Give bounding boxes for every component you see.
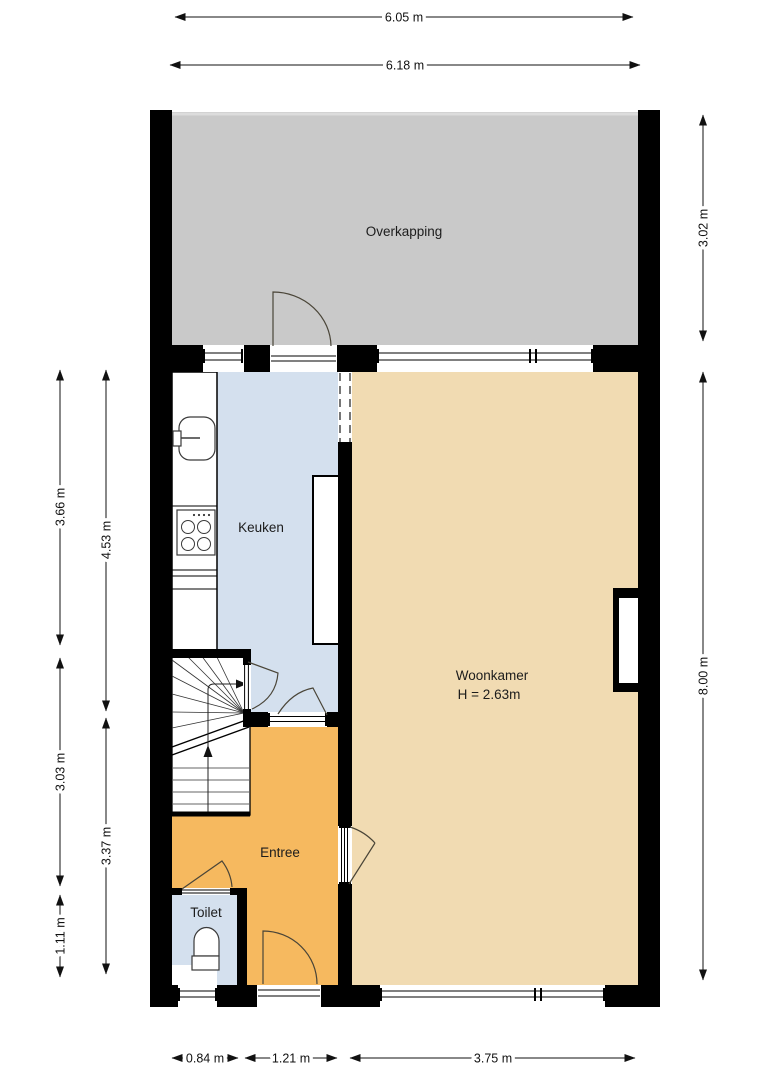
svg-text:0.84 m: 0.84 m <box>186 1052 224 1066</box>
window-toilet <box>178 985 217 1007</box>
door-opening-keuken-entree <box>268 712 327 727</box>
window-keuken <box>203 345 244 372</box>
door-opening-stairs-keuken <box>243 663 251 711</box>
svg-text:3.75 m: 3.75 m <box>474 1052 512 1066</box>
svg-text:6.18 m: 6.18 m <box>386 59 424 73</box>
door-opening-entree-woonkamer <box>338 826 352 884</box>
floor-plan-svg: Overkapping Keuken Woonkamer H = 2.63m E… <box>0 0 763 1080</box>
svg-text:4.53 m: 4.53 m <box>100 521 114 559</box>
wall-stair-top <box>172 649 251 658</box>
door-opening-overkapping <box>270 345 337 372</box>
label-woonkamer-height: H = 2.63m <box>458 687 521 702</box>
svg-text:3.37 m: 3.37 m <box>100 827 114 865</box>
floor-plan-page: Overkapping Keuken Woonkamer H = 2.63m E… <box>0 0 763 1080</box>
toilet-fixture-icon <box>192 928 219 971</box>
label-keuken: Keuken <box>238 520 284 535</box>
label-woonkamer: Woonkamer <box>456 668 529 683</box>
window-woonkamer-top <box>377 345 593 372</box>
staircase <box>172 650 250 815</box>
label-overkapping: Overkapping <box>366 224 443 239</box>
tall-cabinet <box>313 476 340 644</box>
stove-icon <box>177 510 215 555</box>
wall-left <box>150 110 172 1007</box>
svg-text:3.66 m: 3.66 m <box>54 488 68 526</box>
svg-text:8.00 m: 8.00 m <box>697 657 711 695</box>
svg-text:3.03 m: 3.03 m <box>54 753 68 791</box>
dashed-opening-keuken-woonkamer <box>338 372 352 442</box>
door-opening-toilet <box>180 888 232 895</box>
window-woonkamer-bottom <box>380 985 605 1007</box>
svg-text:1.11 m: 1.11 m <box>54 917 68 954</box>
door-opening-front <box>257 985 321 1007</box>
chimney-niche <box>613 588 643 692</box>
wall-keuken-woonkamer <box>338 372 352 985</box>
wall-right <box>638 110 660 1007</box>
label-entree: Entree <box>260 845 300 860</box>
label-toilet: Toilet <box>190 905 222 920</box>
faucet-icon <box>173 431 181 446</box>
svg-text:1.21 m: 1.21 m <box>272 1052 310 1066</box>
wall-toilet-right <box>237 888 247 985</box>
svg-text:6.05 m: 6.05 m <box>385 11 423 25</box>
sink-icon <box>173 417 215 460</box>
svg-text:3.02 m: 3.02 m <box>697 209 711 247</box>
